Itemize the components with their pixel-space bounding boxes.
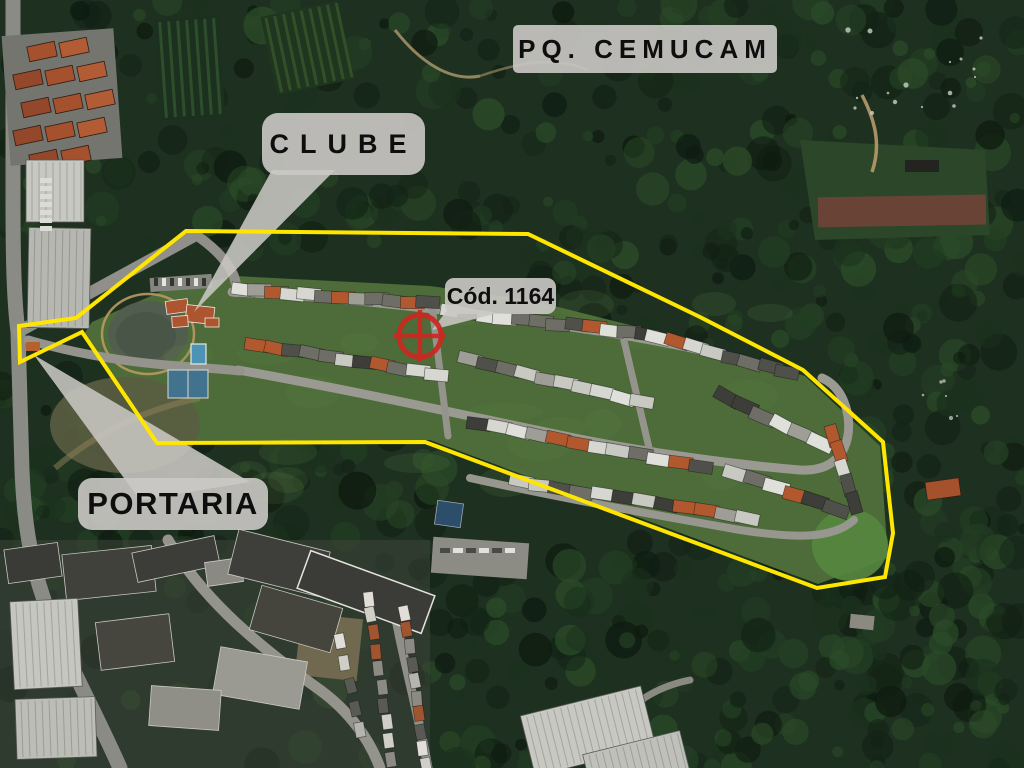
satellite-map: PQ. CEMUCAM CLUBE Cód. 1164 PORTARIA	[0, 0, 1024, 768]
satellite-basemap	[0, 0, 1024, 768]
gate-label: PORTARIA	[78, 478, 268, 530]
property-code-label: Cód. 1164	[445, 278, 556, 314]
club-label: CLUBE	[262, 113, 425, 175]
park-label: PQ. CEMUCAM	[513, 25, 777, 73]
